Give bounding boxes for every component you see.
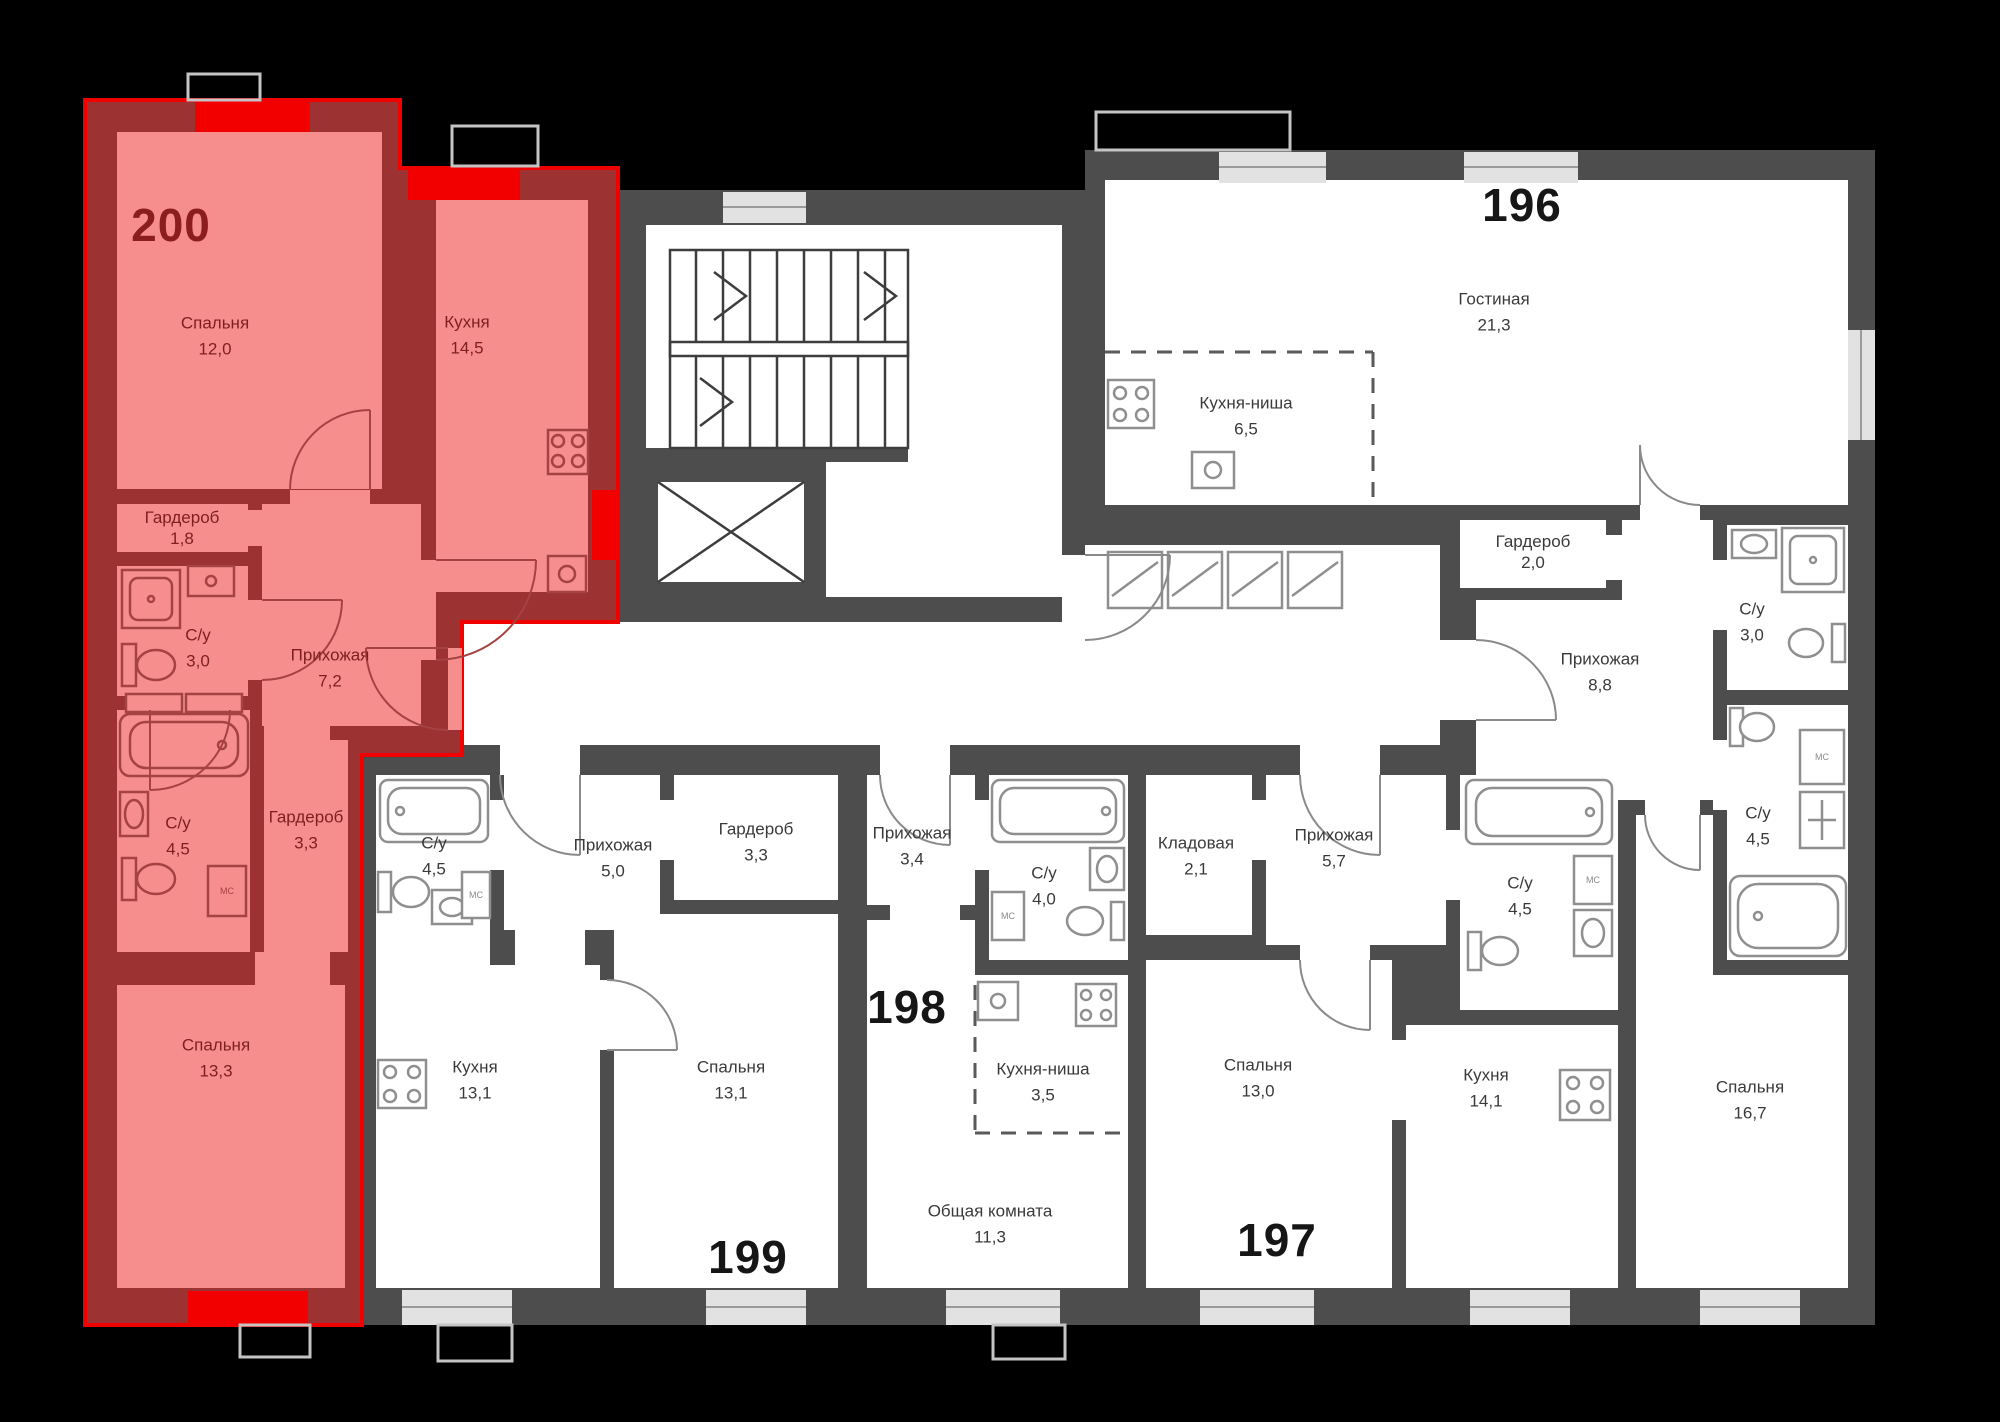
apartment-196-region[interactable] (1085, 150, 1875, 545)
room-area: 2,0 (1496, 552, 1571, 573)
apartment-196-region[interactable] (1618, 545, 1875, 1325)
apartment-198-region[interactable] (853, 745, 1146, 1325)
floor-plan: 200 199 198 197 196 Спальня12,0 Кухня14,… (0, 0, 2000, 1422)
apartment-199-region[interactable] (362, 745, 853, 1325)
apartment-197-region[interactable] (1146, 745, 1618, 1325)
